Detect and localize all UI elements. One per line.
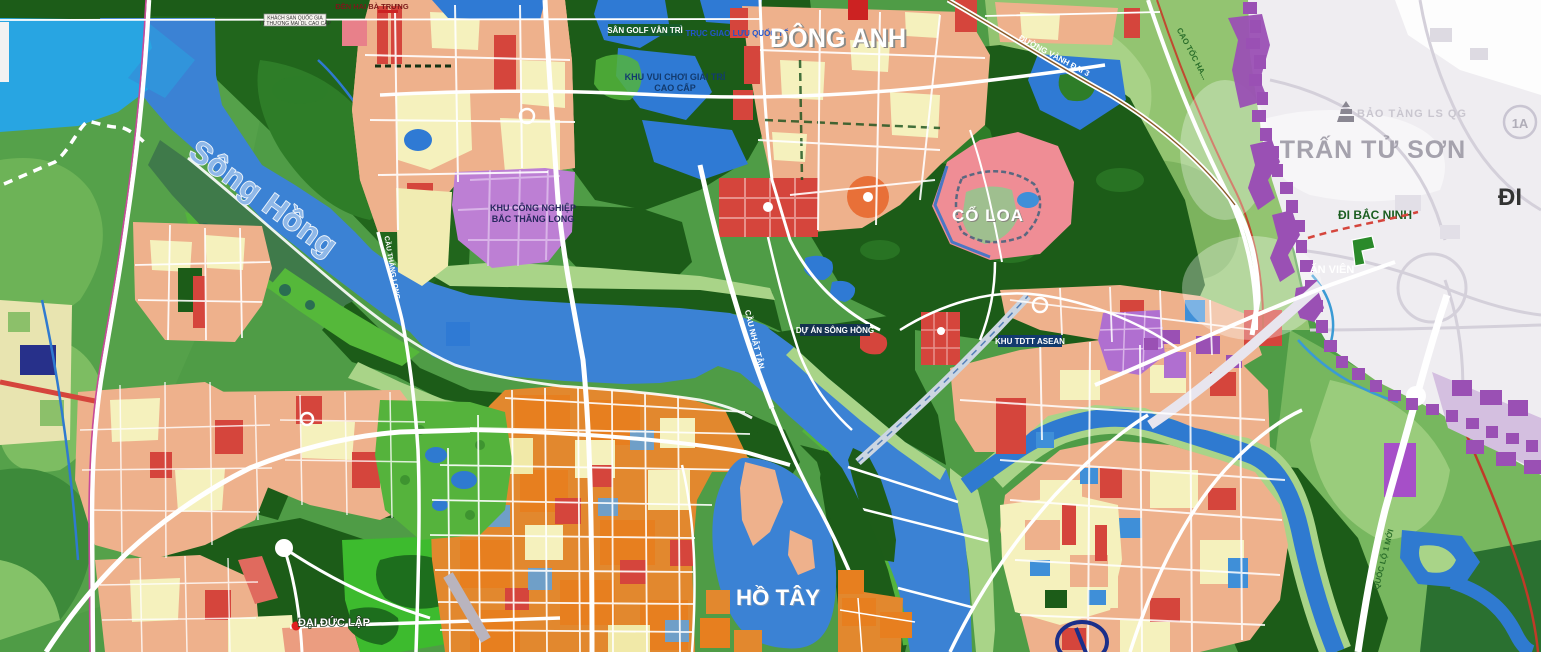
svg-text:ĐI BẮC NINH: ĐI BẮC NINH: [1338, 207, 1412, 222]
svg-text:DỰ ÁN SÔNG HỒNG: DỰ ÁN SÔNG HỒNG: [796, 325, 874, 335]
svg-text:ĐỀN HAI BÀ TRƯNG: ĐỀN HAI BÀ TRƯNG: [335, 1, 408, 11]
svg-text:CAO CẤP: CAO CẤP: [654, 83, 696, 93]
svg-text:1A: 1A: [1512, 116, 1529, 131]
svg-text:ẤN VIÊN: ẤN VIÊN: [1310, 263, 1355, 276]
svg-text:KHU VUI CHƠI GIẢI TRÍ: KHU VUI CHƠI GIẢI TRÍ: [625, 71, 726, 82]
svg-text:BẢO TÀNG LS QG: BẢO TÀNG LS QG: [1357, 107, 1467, 120]
svg-text:TRẤN TỬ SƠN: TRẤN TỬ SƠN: [1280, 134, 1466, 164]
svg-text:ĐI: ĐI: [1498, 184, 1522, 211]
svg-text:HỒ TÂY: HỒ TÂY: [736, 585, 820, 610]
svg-text:SÂN GOLF VÂN TRÌ: SÂN GOLF VÂN TRÌ: [607, 26, 683, 35]
svg-text:ĐẠI ĐỨC LẬP: ĐẠI ĐỨC LẬP: [298, 616, 370, 629]
svg-text:KHU TDTT ASEAN: KHU TDTT ASEAN: [995, 337, 1065, 346]
svg-text:TT THƯƠNG MẠI DL CAO CẤP: TT THƯƠNG MẠI DL CAO CẤP: [259, 20, 331, 27]
svg-text:BẮC THĂNG LONG: BẮC THĂNG LONG: [492, 214, 575, 224]
svg-text:ĐÔNG ANH: ĐÔNG ANH: [770, 22, 906, 53]
svg-text:KHU CÔNG NGHIỆP: KHU CÔNG NGHIỆP: [490, 202, 576, 213]
svg-text:CỔ LOA: CỔ LOA: [952, 206, 1024, 225]
